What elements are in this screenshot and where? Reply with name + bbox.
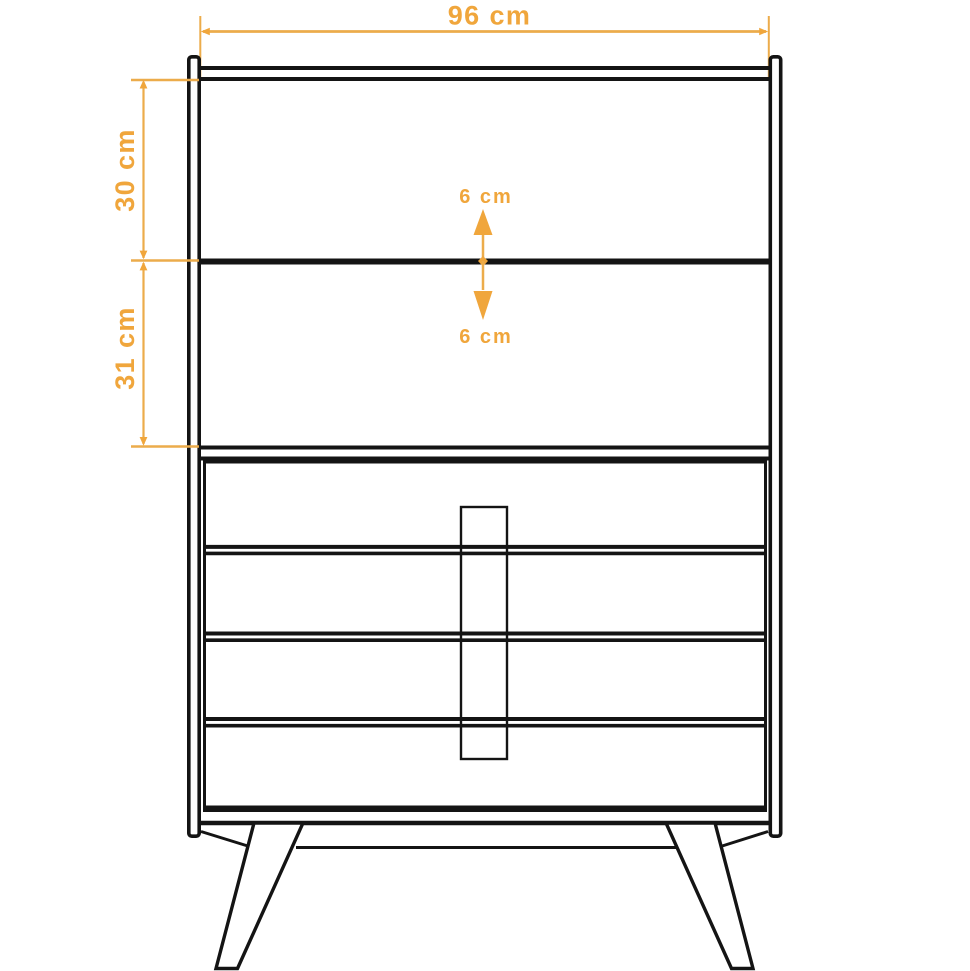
svg-text:6 cm: 6 cm xyxy=(459,186,513,208)
svg-text:31 cm: 31 cm xyxy=(110,306,140,390)
svg-text:30 cm: 30 cm xyxy=(110,128,140,212)
svg-text:6 cm: 6 cm xyxy=(459,326,513,348)
svg-text:96 cm: 96 cm xyxy=(448,1,532,31)
